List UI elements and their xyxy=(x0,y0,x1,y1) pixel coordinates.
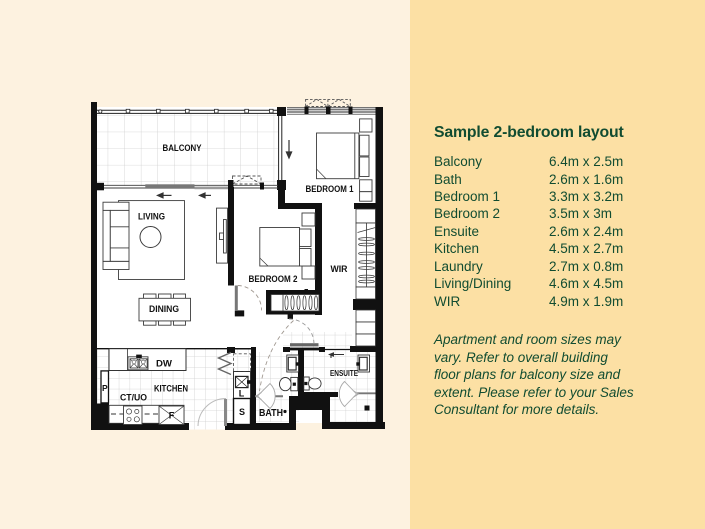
svg-text:CT/UO: CT/UO xyxy=(120,393,147,404)
svg-text:BALCONY: BALCONY xyxy=(163,143,203,154)
svg-text:DINING: DINING xyxy=(149,304,179,315)
svg-text:BEDROOM 1: BEDROOM 1 xyxy=(306,184,355,195)
svg-text:WIR: WIR xyxy=(331,264,348,275)
svg-text:S: S xyxy=(239,407,245,417)
svg-text:DW: DW xyxy=(156,359,173,369)
svg-text:BEDROOM 2: BEDROOM 2 xyxy=(249,274,298,285)
svg-text:LIVING: LIVING xyxy=(138,212,165,223)
svg-text:KITCHEN: KITCHEN xyxy=(154,384,188,395)
svg-text:P: P xyxy=(102,383,108,393)
svg-text:BATH: BATH xyxy=(259,408,283,419)
svg-text:L: L xyxy=(239,389,245,399)
svg-text:F: F xyxy=(169,411,175,421)
svg-text:ENSUITE: ENSUITE xyxy=(330,368,358,378)
